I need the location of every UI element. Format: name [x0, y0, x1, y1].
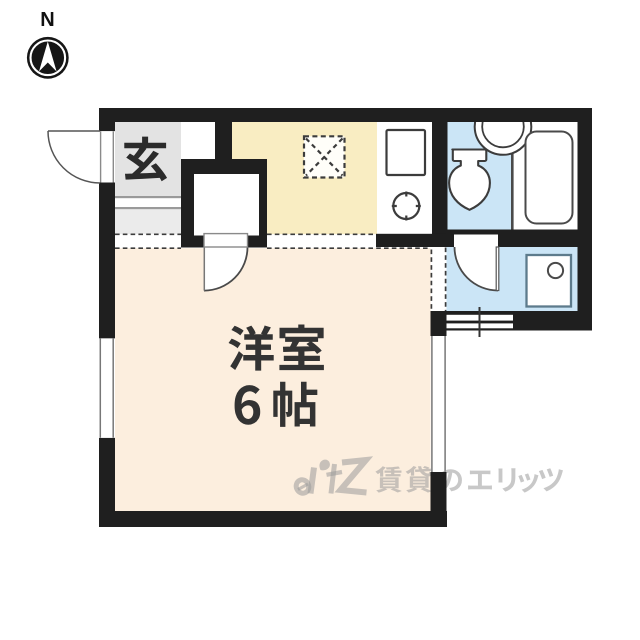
svg-text:N: N	[40, 9, 54, 31]
